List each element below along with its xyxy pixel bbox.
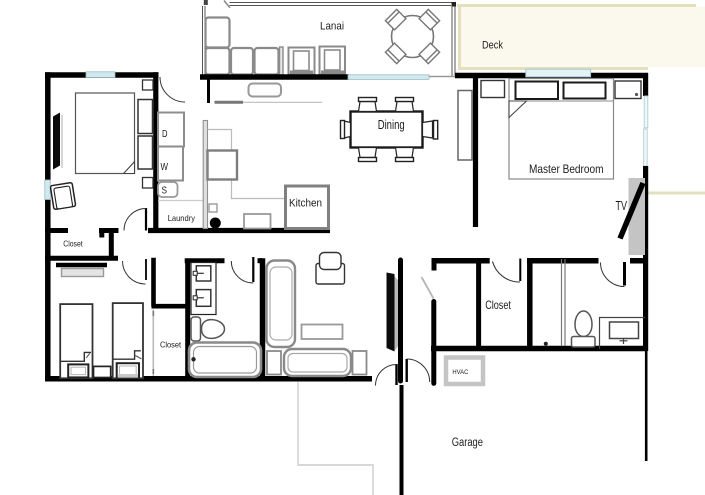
svg-text:Laundry: Laundry [168,213,196,223]
svg-text:Master Bedroom: Master Bedroom [529,162,604,176]
svg-text:S: S [162,186,168,197]
svg-text:Closet: Closet [63,238,83,248]
svg-text:Kitchen: Kitchen [289,198,322,210]
svg-text:HVAC: HVAC [452,369,468,376]
svg-text:Closet: Closet [160,340,182,350]
svg-text:D: D [162,129,168,140]
svg-text:Closet: Closet [485,298,511,312]
svg-text:Lanai: Lanai [320,21,344,33]
svg-text:W: W [161,162,169,173]
svg-text:Deck: Deck [482,40,503,52]
svg-text:Garage: Garage [452,437,483,449]
svg-text:TV: TV [616,199,628,213]
svg-text:Dining: Dining [378,117,405,132]
